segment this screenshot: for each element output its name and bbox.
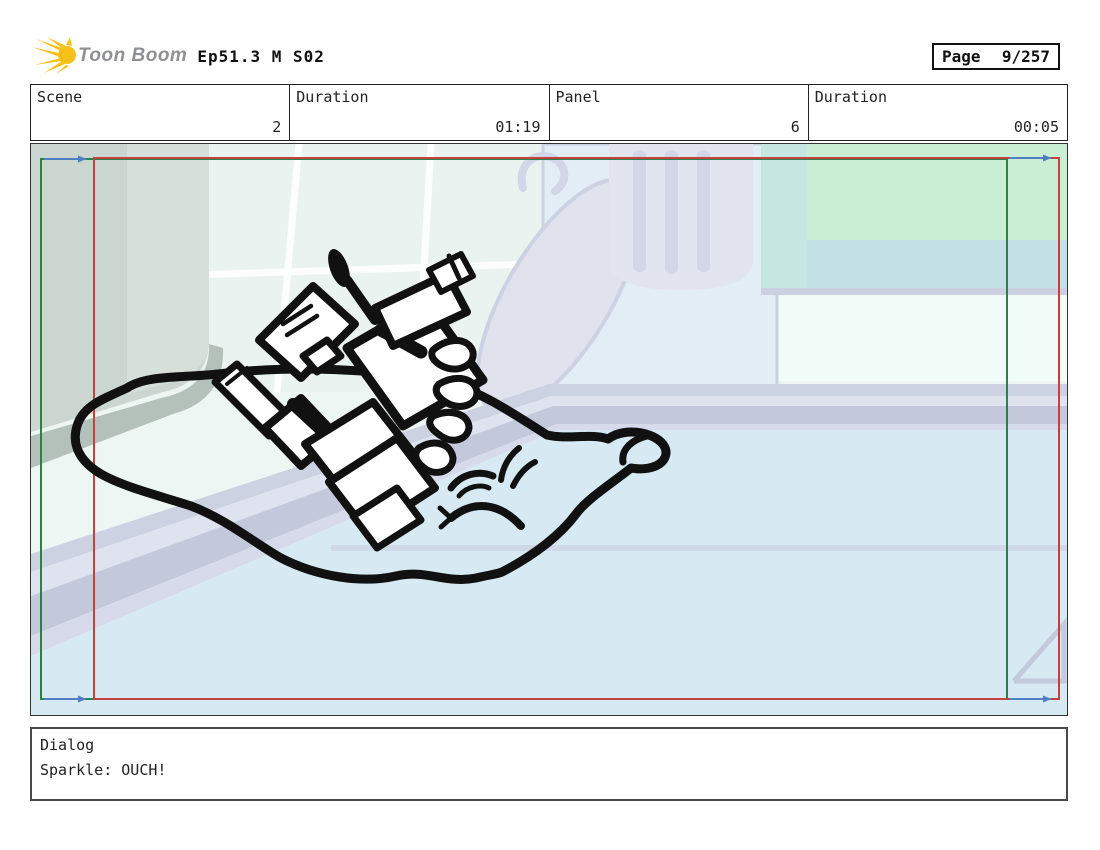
dialog-label: Dialog	[40, 733, 1058, 758]
utensil-crock	[609, 144, 753, 290]
logo-wordmark: Toon Boom	[78, 45, 187, 67]
scene-value: 2	[272, 118, 281, 136]
panel-artwork	[31, 144, 1067, 715]
panel-info-table: Scene 2 Duration 01:19 Panel 6 Duration …	[30, 84, 1068, 141]
page-value: 9/257	[1002, 47, 1050, 66]
panel-cell: Panel 6	[549, 85, 808, 140]
dialog-line: Sparkle: OUCH!	[40, 758, 1058, 783]
scene-duration-value: 01:19	[495, 118, 540, 136]
episode-title: Ep51.3 M S02	[197, 47, 325, 66]
dialog-box: Dialog Sparkle: OUCH!	[30, 727, 1068, 801]
panel-duration-value: 00:05	[1014, 118, 1059, 136]
scene-cell: Scene 2	[31, 85, 289, 140]
panel-duration-cell: Duration 00:05	[808, 85, 1067, 140]
page-label: Page	[942, 47, 981, 66]
storyboard-panel	[30, 143, 1068, 716]
page-header: Toon Boom Ep51.3 M S02 Page 9/257	[30, 36, 1068, 76]
blue-backsplash-band	[807, 240, 1067, 288]
panel-duration-label: Duration	[815, 88, 887, 106]
scene-duration-cell: Duration 01:19	[289, 85, 548, 140]
storyboard-page: { "header": { "logo_text": "Toon Boom", …	[0, 0, 1100, 850]
teal-wall-block	[761, 144, 807, 290]
panel-label: Panel	[556, 88, 601, 106]
background-art	[31, 144, 1067, 715]
scene-duration-label: Duration	[296, 88, 368, 106]
toonboom-logo: Toon Boom	[30, 37, 187, 75]
light-wall-band	[779, 295, 1067, 381]
toonboom-starburst-icon	[30, 37, 76, 75]
scene-label: Scene	[37, 88, 82, 106]
panel-value: 6	[791, 118, 800, 136]
page-number-box: Page 9/257	[932, 43, 1060, 70]
